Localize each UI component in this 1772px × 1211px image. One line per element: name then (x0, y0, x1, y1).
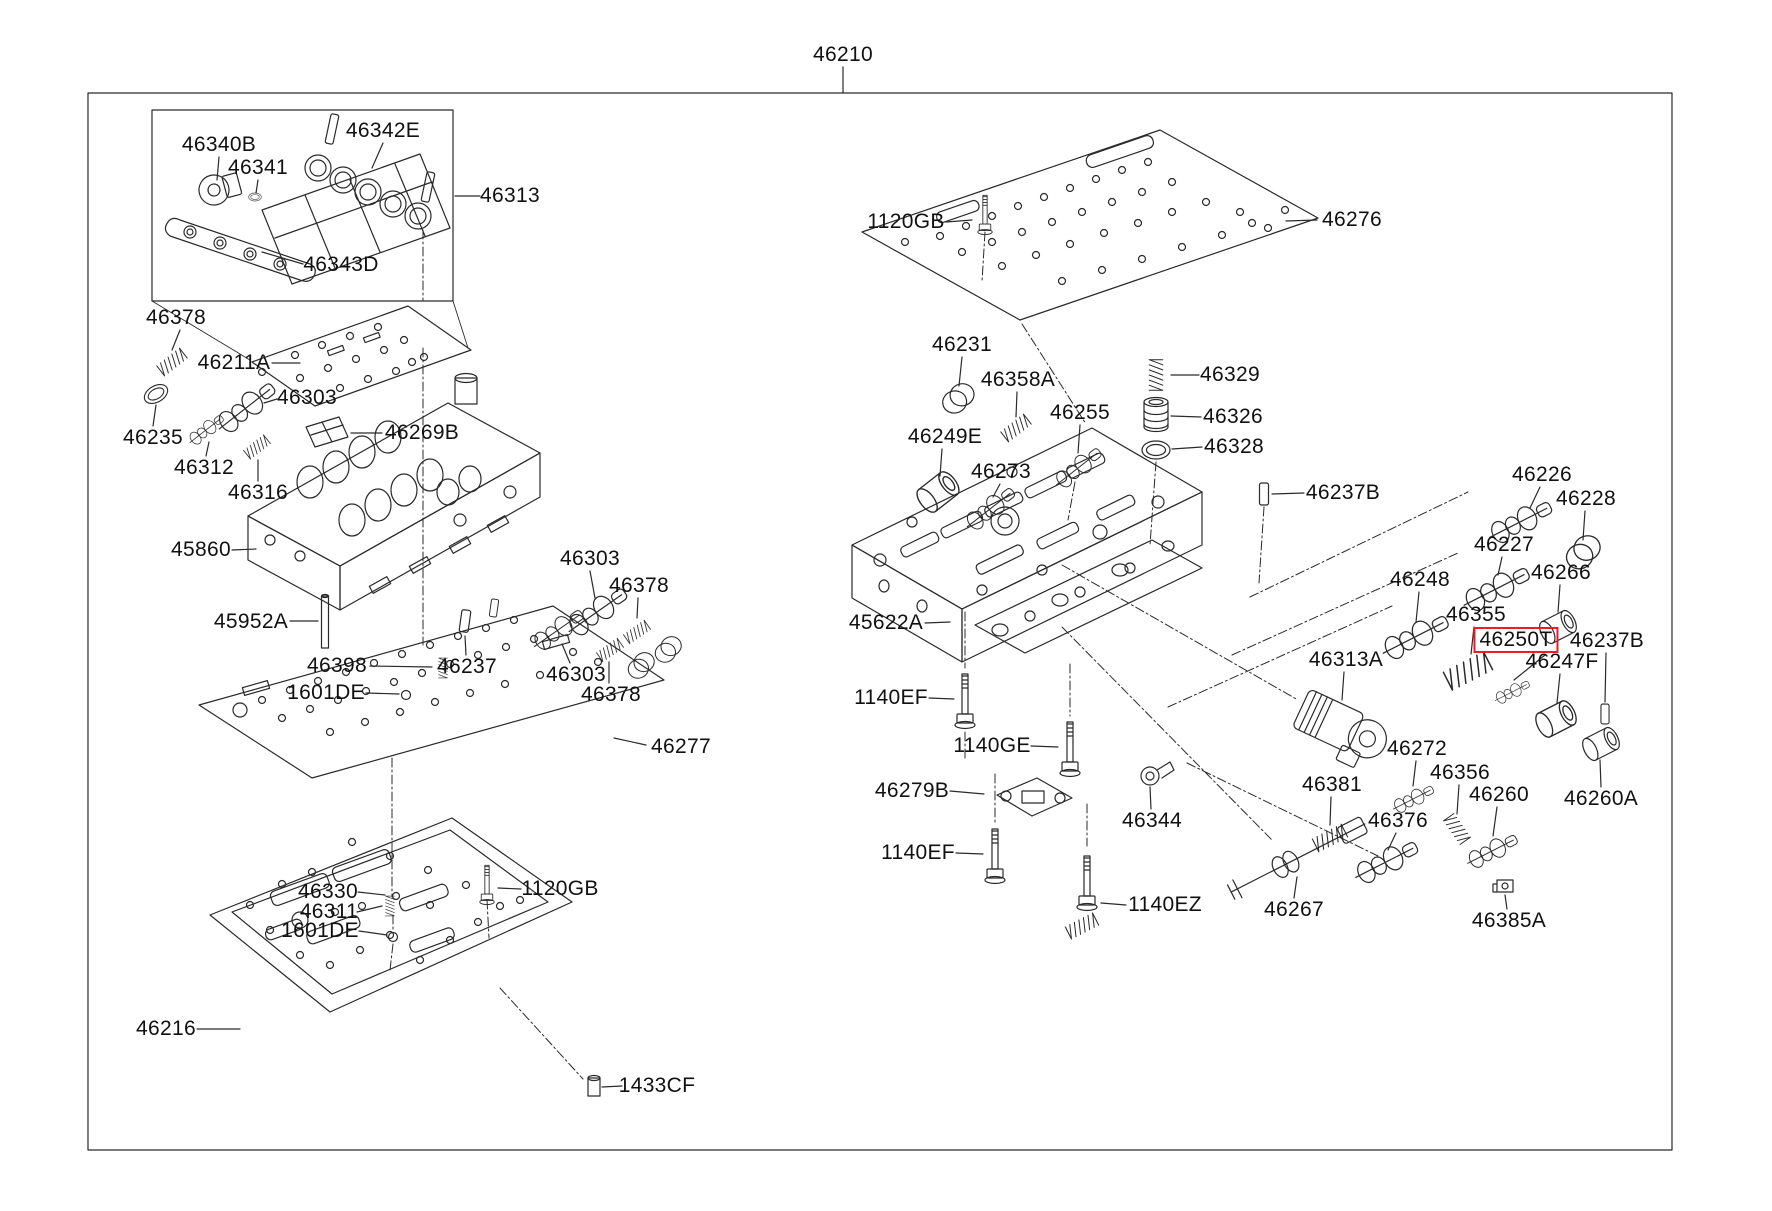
leader-line-1120GBa (498, 888, 521, 889)
leader-line-46303c (562, 644, 570, 663)
part-label-46312[interactable]: 46312 (174, 457, 234, 479)
part-label-46358A[interactable]: 46358A (981, 369, 1055, 391)
part-label-46260A[interactable]: 46260A (1564, 788, 1638, 810)
part-label-1120GBb[interactable]: 1120GB (867, 211, 944, 233)
part-label-46355[interactable]: 46355 (1446, 604, 1506, 626)
part-label-46340B[interactable]: 46340B (182, 134, 256, 156)
part-label-1120GBa[interactable]: 1120GB (521, 878, 598, 900)
part-label-46226[interactable]: 46226 (1512, 464, 1572, 486)
leader-line-46255 (1078, 425, 1080, 453)
part-label-46269B[interactable]: 46269B (385, 422, 459, 444)
part-label-46378a[interactable]: 46378 (146, 307, 206, 329)
leader-line-46266 (1558, 585, 1560, 612)
part-label-46277[interactable]: 46277 (651, 736, 711, 758)
part-label-46329[interactable]: 46329 (1200, 364, 1260, 386)
part-label-45622A[interactable]: 45622A (849, 612, 923, 634)
leader-line-1601DEa (366, 693, 399, 694)
part-label-46227[interactable]: 46227 (1474, 534, 1534, 556)
leader-line-46231 (959, 357, 962, 386)
part-label-46237a[interactable]: 46237 (437, 656, 497, 678)
part-label-46343D[interactable]: 46343D (303, 254, 378, 276)
part-label-46235[interactable]: 46235 (123, 427, 183, 449)
leader-line-46378a (172, 330, 180, 350)
part-label-46341[interactable]: 46341 (228, 157, 288, 179)
leader-line-46344 (1150, 787, 1151, 809)
part-label-45952A[interactable]: 45952A (214, 611, 288, 633)
leader-line-46303a (264, 399, 277, 403)
leader-line-46358A (1016, 392, 1017, 417)
leader-line-1140GE (1031, 746, 1058, 747)
part-label-46279B[interactable]: 46279B (875, 780, 949, 802)
part-label-46276[interactable]: 46276 (1322, 209, 1382, 231)
part-label-1601DEb[interactable]: 1601DE (281, 920, 359, 942)
part-label-46216[interactable]: 46216 (136, 1018, 196, 1040)
leader-line-1601DEb (359, 931, 387, 935)
leader-line-46249E (940, 449, 942, 476)
part-label-46378b[interactable]: 46378 (609, 575, 669, 597)
leader-line-1140EFa (929, 698, 954, 699)
leader-line-46277 (614, 738, 646, 745)
part-label-46210[interactable]: 46210 (813, 44, 873, 66)
part-label-46378c[interactable]: 46378 (581, 684, 641, 706)
leader-line-46381 (1330, 797, 1331, 825)
leader-line-1140EZ (1101, 903, 1126, 905)
part-label-46381[interactable]: 46381 (1302, 774, 1362, 796)
leader-line-46343D (262, 252, 303, 264)
part-label-46266[interactable]: 46266 (1531, 562, 1591, 584)
leader-line-45860 (232, 549, 256, 550)
leader-line-46378b (637, 598, 638, 618)
leader-line-46228 (1583, 511, 1585, 540)
leader-line-46267 (1294, 877, 1297, 898)
part-label-46376[interactable]: 46376 (1368, 810, 1428, 832)
part-label-46272[interactable]: 46272 (1387, 738, 1447, 760)
leader-line-46227 (1498, 557, 1502, 575)
part-label-46249E[interactable]: 46249E (908, 426, 982, 448)
leader-line-46376 (1388, 833, 1396, 850)
part-label-46313A[interactable]: 46313A (1309, 649, 1383, 671)
leader-line-46272 (1413, 761, 1416, 786)
leader-line-46341 (256, 180, 258, 193)
leader-line-46340B (217, 157, 219, 180)
leader-line-46237Ba (1272, 493, 1304, 494)
part-label-45860[interactable]: 45860 (171, 539, 231, 561)
leader-line-46313A (1342, 672, 1344, 700)
part-label-46303a[interactable]: 46303 (277, 387, 337, 409)
leader-line-46273 (993, 484, 1000, 497)
leader-line-1140EFb (956, 853, 983, 854)
part-label-1601DEa[interactable]: 1601DE (287, 682, 365, 704)
leader-line-46248 (1416, 592, 1419, 622)
leader-lines-layer (0, 0, 1772, 1211)
leader-line-46330 (358, 892, 385, 895)
part-label-46342E[interactable]: 46342E (346, 120, 420, 142)
part-label-46248[interactable]: 46248 (1390, 569, 1450, 591)
leader-line-46326 (1171, 416, 1201, 417)
part-label-46328[interactable]: 46328 (1204, 436, 1264, 458)
part-label-1140EZ[interactable]: 1140EZ (1128, 894, 1202, 916)
part-label-46231[interactable]: 46231 (932, 334, 992, 356)
part-label-46255[interactable]: 46255 (1050, 402, 1110, 424)
leader-line-46260 (1493, 807, 1497, 836)
leader-line-45622A (925, 622, 950, 623)
part-label-46267[interactable]: 46267 (1264, 899, 1324, 921)
part-label-46237Ba[interactable]: 46237B (1306, 482, 1380, 504)
leader-line-46303b (590, 571, 595, 598)
part-label-46228[interactable]: 46228 (1556, 488, 1616, 510)
part-label-46211A[interactable]: 46211A (198, 352, 271, 374)
leader-line-46237Bb (1605, 653, 1606, 702)
part-label-46316[interactable]: 46316 (228, 482, 288, 504)
part-label-1433CF[interactable]: 1433CF (619, 1075, 696, 1097)
part-label-1140EFa[interactable]: 1140EF (854, 687, 928, 709)
leader-line-46312 (206, 442, 209, 456)
part-label-1140EFb[interactable]: 1140EF (881, 842, 955, 864)
leader-line-46276 (1286, 220, 1317, 221)
leader-line-46279B (950, 791, 984, 794)
leader-line-46328 (1172, 447, 1202, 449)
leader-line-46398 (370, 666, 432, 667)
part-label-46398[interactable]: 46398 (307, 655, 367, 677)
leader-line-46235 (153, 405, 156, 426)
part-label-46356[interactable]: 46356 (1430, 762, 1490, 784)
part-label-46247F[interactable]: 46247F (1525, 651, 1598, 673)
leader-line-46237a (465, 636, 466, 655)
leader-line-46226 (1530, 487, 1540, 508)
part-label-46326[interactable]: 46326 (1203, 406, 1263, 428)
leader-line-46342E (372, 143, 383, 168)
part-label-46344[interactable]: 46344 (1122, 810, 1182, 832)
parts-diagram-page: 4621046340B4634146342E4631346343D4637846… (0, 0, 1772, 1211)
part-label-46385A[interactable]: 46385A (1472, 910, 1546, 932)
part-label-1140GE[interactable]: 1140GE (953, 735, 1030, 757)
leader-line-46247F (1557, 674, 1560, 703)
part-label-46273[interactable]: 46273 (971, 461, 1031, 483)
part-label-46313[interactable]: 46313 (480, 185, 540, 207)
leader-line-46356 (1457, 785, 1459, 814)
part-label-46303b[interactable]: 46303 (560, 548, 620, 570)
leader-line-1120GBb (946, 220, 972, 222)
leader-line-46385A (1505, 895, 1507, 909)
part-label-46237Bb[interactable]: 46237B (1570, 630, 1644, 652)
part-label-46260[interactable]: 46260 (1469, 784, 1529, 806)
leader-line-46260A (1600, 760, 1601, 787)
leader-line-46311 (357, 906, 382, 912)
